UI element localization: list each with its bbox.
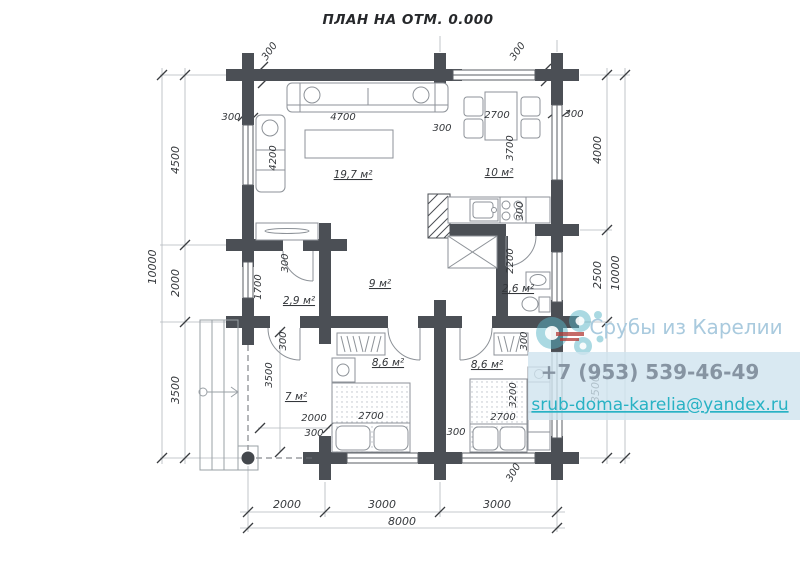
- dim-wall-300: 300: [446, 427, 465, 438]
- dim-wall-300: 300: [260, 41, 280, 63]
- wardrobe-bedroom1: [337, 333, 385, 355]
- hall-wardrobe: [448, 236, 497, 268]
- dim-left-total: 10000: [146, 250, 159, 285]
- dim-left-3500: 3500: [169, 376, 182, 404]
- dim-sofa: 4700: [330, 112, 355, 123]
- company-name: Срубы из Карелии: [589, 315, 782, 339]
- dim-wall-300: 300: [304, 428, 323, 439]
- dim-bed2: 2700: [490, 412, 515, 423]
- dim-right-4000: 4000: [591, 136, 604, 164]
- stove-burner: [502, 201, 510, 209]
- dim-bottom-3000a: 3000: [368, 498, 396, 511]
- dim-corner-sofa: 4200: [268, 145, 279, 170]
- dim-bottom-2000: 2000: [273, 498, 301, 511]
- dim-wall-300: 300: [508, 41, 528, 63]
- tv-stand: [256, 223, 318, 240]
- room-label-bathroom: 2,6 м²: [502, 283, 535, 295]
- floor-plan-svg: ПЛАН НА ОТМ. 0.000 4500 2000 3500 10000 …: [0, 0, 800, 564]
- company-phone: +7 (953) 539-46-49: [541, 360, 760, 384]
- room-label-entry: 7 м²: [285, 391, 308, 403]
- room-label-bedroom2: 8,6 м²: [471, 359, 504, 371]
- dim-bed2-length: 3200: [508, 382, 519, 407]
- sofa: [287, 83, 448, 112]
- dim-left-2000: 2000: [169, 269, 182, 297]
- dim-wall-300: 300: [278, 331, 289, 350]
- dim-bed1: 2700: [358, 411, 383, 422]
- dim-wall-300: 300: [504, 462, 523, 484]
- dim-entry-depth: 3500: [264, 362, 275, 387]
- coffee-table: [305, 130, 393, 158]
- room-label-living: 19,7 м²: [334, 169, 374, 181]
- kitchen-counter: [448, 197, 550, 223]
- column-marker: [242, 452, 255, 465]
- dim-wall-300: 300: [564, 109, 583, 120]
- chimney-hatch: [428, 194, 450, 238]
- room-label-bedroom1: 8,6 м²: [372, 357, 405, 369]
- room-label-kitchen: 10 м²: [485, 167, 515, 179]
- dim-right-2500: 2500: [591, 261, 604, 289]
- dim-bottom-3000b: 3000: [483, 498, 511, 511]
- dim-storage: 1700: [253, 274, 264, 299]
- dim-left-4500: 4500: [169, 146, 182, 174]
- floor-plan-page: ПЛАН НА ОТМ. 0.000 4500 2000 3500 10000 …: [0, 0, 800, 564]
- dim-kitchen-depth: 3700: [505, 135, 516, 160]
- dim-wall-300: 300: [519, 331, 530, 350]
- dim-bottom-total: 8000: [388, 515, 416, 528]
- room-label-storage: 2,9 м²: [283, 295, 316, 307]
- dim-bath: 2200: [505, 248, 516, 273]
- company-email: srub-doma-karelia@yandex.ru: [531, 395, 788, 415]
- dim-wall-300: 300: [515, 201, 526, 220]
- nightstand: [332, 358, 355, 382]
- dim-wall-300: 300: [432, 123, 451, 134]
- room-label-hall: 9 м²: [369, 278, 392, 290]
- dim-entry-width: 2000: [301, 413, 326, 424]
- dim-dining: 2700: [484, 110, 509, 121]
- plan-title: ПЛАН НА ОТМ. 0.000: [322, 12, 493, 28]
- dim-wall-300: 300: [221, 112, 240, 123]
- toilet: [522, 297, 550, 312]
- dim-right-total: 10000: [609, 256, 622, 291]
- dim-wall-300: 300: [280, 253, 291, 272]
